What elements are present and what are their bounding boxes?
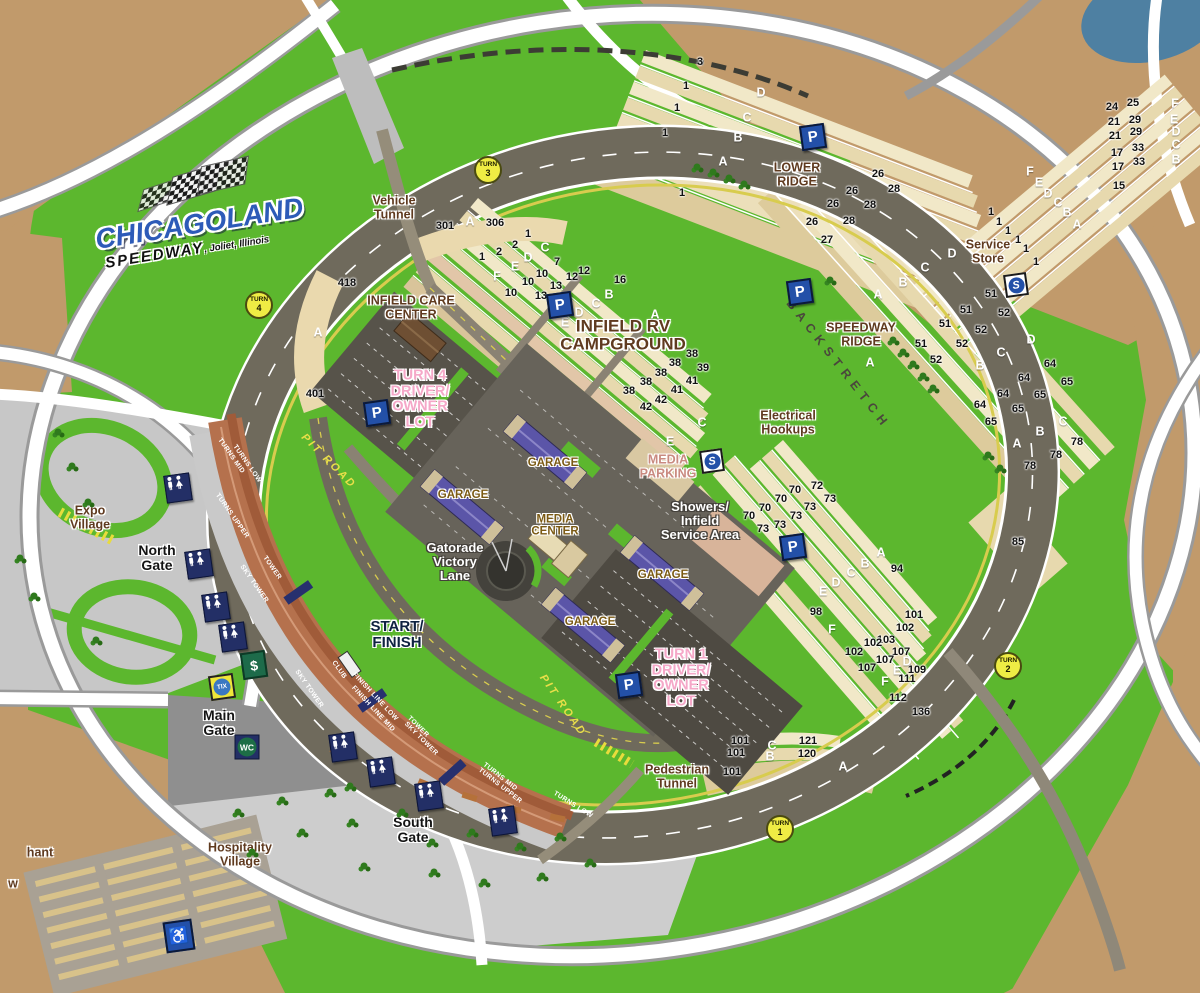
campsite-number: 107 xyxy=(892,647,910,659)
service-store-label: Service Store xyxy=(966,239,1010,266)
campsite-number: 72 xyxy=(811,481,823,493)
campsite-number: 73 xyxy=(824,494,836,506)
pit-road-label-1: PIT ROAD xyxy=(298,432,358,492)
campsite-number: 1 xyxy=(679,188,685,200)
tree-icon xyxy=(741,181,748,188)
campsite-number: 24 xyxy=(1106,102,1118,114)
row-letter: E xyxy=(666,435,674,449)
backstretch-label: BACKSTRETCH xyxy=(783,297,893,432)
row-letter: F xyxy=(828,623,836,637)
parking-icon: P xyxy=(546,291,574,319)
campsite-number: 38 xyxy=(669,358,681,370)
campsite-number: 42 xyxy=(655,395,667,407)
row-letter: E xyxy=(1035,176,1043,190)
campsite-number: 1 xyxy=(1005,226,1011,238)
campsite-number: 102 xyxy=(896,623,914,635)
campsite-number: 64 xyxy=(997,389,1009,401)
checkered-flags-icon xyxy=(120,136,399,219)
campsite-number: 1 xyxy=(674,103,680,115)
row-letter: A xyxy=(1072,218,1081,232)
campsite-number: 107 xyxy=(876,655,894,667)
row-letter: B xyxy=(604,288,613,302)
tree-icon xyxy=(694,164,701,171)
campsite-number: 51 xyxy=(985,289,997,301)
campsite-number: 101 xyxy=(731,736,749,748)
campsite-number: 38 xyxy=(655,368,667,380)
campsite-number: 51 xyxy=(915,339,927,351)
campsite-number: 101 xyxy=(905,610,923,622)
row-letter: A xyxy=(865,356,874,370)
restroom-icon xyxy=(218,621,248,652)
campsite-number: 33 xyxy=(1133,157,1145,169)
row-letter: D xyxy=(1026,333,1035,347)
campsite-number: 26 xyxy=(806,217,818,229)
campsite-number: 65 xyxy=(985,417,997,429)
campsite-number: 70 xyxy=(743,511,755,523)
wc-icon: WC xyxy=(235,735,260,760)
restroom-icon xyxy=(201,591,231,622)
tree-icon xyxy=(279,797,286,804)
campsite-number: 26 xyxy=(827,199,839,211)
campsite-number: 41 xyxy=(671,385,683,397)
campsite-number: 102 xyxy=(845,647,863,659)
campsite-number: 12 xyxy=(578,266,590,278)
north-gate-label: North Gate xyxy=(138,543,175,573)
map-overlay: CHICAGOLAND SPEEDWAY, Joliet, Illinois V… xyxy=(0,0,1200,993)
south-gate-label: South Gate xyxy=(393,815,433,845)
row-letter: C xyxy=(540,241,549,255)
row-letter: E xyxy=(893,664,901,678)
pit-road-label-2: PIT ROAD xyxy=(536,673,587,739)
campsite-number: 29 xyxy=(1129,115,1141,127)
tree-icon xyxy=(399,809,406,816)
grandstand-section-label: TURNS LOW xyxy=(231,444,263,485)
tree-icon xyxy=(517,843,524,850)
campsite-number: 65 xyxy=(1061,377,1073,389)
campsite-number: 64 xyxy=(1018,373,1030,385)
row-letter: C xyxy=(742,111,751,125)
campsite-number: 64 xyxy=(1044,359,1056,371)
row-letter: B xyxy=(1062,206,1071,220)
campsite-number: 1 xyxy=(1015,235,1021,247)
parking-icon: P xyxy=(799,123,827,151)
cash-icon: $ xyxy=(240,650,269,680)
restroom-icon xyxy=(366,756,396,787)
row-letter: D xyxy=(831,576,840,590)
campsite-number: 111 xyxy=(898,674,915,686)
campsite-number: 15 xyxy=(1113,181,1125,193)
row-letter: B xyxy=(1171,153,1180,167)
parking-icon: P xyxy=(615,671,643,699)
campsite-number: 107 xyxy=(858,663,876,675)
campsite-number: 12 xyxy=(566,272,578,284)
campsite-number: 70 xyxy=(775,494,787,506)
campsite-number: 70 xyxy=(759,503,771,515)
tree-icon xyxy=(431,869,438,876)
campsite-number: 2 xyxy=(512,240,518,252)
row-letter: C xyxy=(591,297,600,311)
restroom-icon xyxy=(163,472,193,503)
row-letter: E xyxy=(819,585,827,599)
campsite-number: 17 xyxy=(1112,162,1124,174)
campsite-number: 38 xyxy=(686,349,698,361)
campsite-number: 73 xyxy=(804,502,816,514)
garage-label-3: GARAGE xyxy=(638,569,688,581)
speedway-logo: CHICAGOLAND SPEEDWAY, Joliet, Illinois xyxy=(87,136,407,273)
grandstand-section-label: SKY TOWER xyxy=(238,564,270,605)
row-letter: C xyxy=(697,416,706,430)
campsite-number: 73 xyxy=(774,520,786,532)
row-letter: D xyxy=(902,655,911,669)
tree-icon xyxy=(85,499,92,506)
turn-2-marker: TURN2 xyxy=(994,652,1022,680)
campsite-number: 52 xyxy=(998,308,1010,320)
main-gate-label: Main Gate xyxy=(203,708,235,738)
media-center-label: MEDIA CENTER xyxy=(531,514,578,539)
logo-location: , Joliet, Illinois xyxy=(204,234,270,255)
campsite-number: 25 xyxy=(1127,98,1139,110)
campsite-number: 1 xyxy=(996,217,1002,229)
campsite-number: 418 xyxy=(338,278,356,290)
row-letter: E xyxy=(511,260,519,274)
infield-care-center-label: INFIELD CARE CENTER xyxy=(367,295,455,322)
expo-village-label: Expo Village xyxy=(70,505,110,532)
campsite-number: 17 xyxy=(1111,148,1123,160)
turn-3-marker: TURN3 xyxy=(474,156,502,184)
logo-tagline: SPEEDWAY xyxy=(104,239,205,271)
campsite-number: 301 xyxy=(436,221,454,233)
start-finish-label: START/ FINISH xyxy=(370,619,423,651)
campsite-number: 121 xyxy=(799,736,817,748)
row-letter: F xyxy=(1026,165,1034,179)
tree-icon xyxy=(429,839,436,846)
row-letter: B xyxy=(765,750,774,764)
campsite-number: 28 xyxy=(888,184,900,196)
row-letter: B xyxy=(898,276,907,290)
garage-label-2: GARAGE xyxy=(528,457,578,469)
row-letter: D xyxy=(756,86,765,100)
campsite-number: 39 xyxy=(697,363,709,375)
tree-icon xyxy=(890,337,897,344)
tree-icon xyxy=(349,819,356,826)
campsite-number: 3 xyxy=(697,57,703,69)
row-letter: A xyxy=(1012,437,1021,451)
logo-name: CHICAGOLAND xyxy=(93,176,404,256)
electrical-hookups-label: Electrical Hookups xyxy=(760,410,816,437)
grandstand-section-label: TURNS LOW xyxy=(552,790,594,820)
campsite-number: 51 xyxy=(939,319,951,331)
campsite-number: 112 xyxy=(889,693,907,705)
tree-icon xyxy=(469,829,476,836)
row-letter: B xyxy=(1035,425,1044,439)
campsite-number: 401 xyxy=(306,389,324,401)
row-letter: B xyxy=(975,359,984,373)
tree-icon xyxy=(930,385,937,392)
campsite-number: 78 xyxy=(1071,437,1083,449)
row-letter: A xyxy=(465,215,474,229)
row-letter: A xyxy=(838,760,847,774)
campsite-number: 51 xyxy=(960,305,972,317)
row-letter: D xyxy=(1043,187,1052,201)
grandstand-section-label: SKY TOWER xyxy=(403,721,440,758)
grandstand-section-label: TOWER xyxy=(261,555,283,581)
campsite-number: 21 xyxy=(1109,131,1121,143)
grandstand-section-label: FINISH LINE LOW xyxy=(351,671,400,722)
tree-icon xyxy=(327,789,334,796)
campsite-number: 102 xyxy=(864,638,882,650)
row-letter: A xyxy=(313,326,322,340)
media-parking-label: MEDIA PARKING xyxy=(640,454,697,481)
grandstand-section-label: CLUB xyxy=(330,660,348,681)
row-letter: C xyxy=(1053,196,1062,210)
merchant-row-label-fragment: hant xyxy=(27,846,53,860)
parking-icon: P xyxy=(363,399,391,427)
grandstand-section-label: TURNS MID xyxy=(481,761,518,792)
row-letter: E xyxy=(561,316,569,330)
lower-ridge-label: LOWER RIDGE xyxy=(774,162,821,189)
restroom-icon xyxy=(184,548,214,579)
campsite-number: 10 xyxy=(522,277,534,289)
showers-service-area-label: Showers/ Infield Service Area xyxy=(661,500,739,542)
turn-1-marker: TURN1 xyxy=(766,815,794,843)
campsite-number: 7 xyxy=(554,257,560,269)
campsite-number: 65 xyxy=(1012,404,1024,416)
infield-rv-campground-label: INFIELD RV CAMPGROUND xyxy=(560,318,686,355)
tree-icon xyxy=(17,555,24,562)
row-letter: D xyxy=(574,306,583,320)
campsite-number: 1 xyxy=(1033,257,1039,269)
tree-icon xyxy=(249,849,256,856)
campsite-number: 33 xyxy=(1132,143,1144,155)
tree-icon xyxy=(93,637,100,644)
campsite-number: 26 xyxy=(846,186,858,198)
accessible-parking-icon: ♿ xyxy=(162,919,195,954)
campsite-number: 73 xyxy=(790,511,802,523)
tree-icon xyxy=(69,463,76,470)
campsite-number: 29 xyxy=(1130,127,1142,139)
row-letter: B xyxy=(860,557,869,571)
speedway-ridge-label: SPEEDWAY RIDGE xyxy=(826,322,896,349)
row-letter: A xyxy=(873,288,882,302)
s-marker-icon: S xyxy=(699,448,725,474)
tree-icon xyxy=(539,873,546,880)
row-letter: A xyxy=(718,155,727,169)
campsite-number: 41 xyxy=(686,376,698,388)
campsite-number: 38 xyxy=(623,386,635,398)
row-letter: C xyxy=(1171,138,1180,152)
campsite-number: 85 xyxy=(1012,537,1024,549)
row-letter: F xyxy=(1171,97,1179,111)
campsite-number: 1 xyxy=(479,252,485,264)
parking-icon: P xyxy=(786,278,814,306)
campsite-number: 28 xyxy=(864,200,876,212)
tree-icon xyxy=(587,859,594,866)
tree-icon xyxy=(710,169,717,176)
tree-icon xyxy=(347,783,354,790)
campsite-number: 94 xyxy=(891,564,903,576)
garage-label-1: GARAGE xyxy=(438,489,488,501)
campsite-number: 27 xyxy=(821,235,833,247)
tree-icon xyxy=(985,452,992,459)
restroom-icon xyxy=(414,780,444,811)
row-letter: C xyxy=(767,739,776,753)
row-letter: C xyxy=(846,566,855,580)
restroom-icon xyxy=(488,805,518,836)
campsite-number: 52 xyxy=(956,339,968,351)
grandstand-section-label: TURNS UPPER xyxy=(214,492,250,540)
restroom-icon xyxy=(328,731,358,762)
row-letter: D xyxy=(947,247,956,261)
tree-icon xyxy=(481,879,488,886)
grandstand-section-label: TURNS MID xyxy=(216,437,246,475)
tree-icon xyxy=(299,829,306,836)
grandstand-section-label: FINISH LINE MID xyxy=(350,685,396,734)
victory-lane-label: Gatorade Victory Lane xyxy=(426,541,483,583)
campsite-number: 103 xyxy=(877,635,895,647)
merchant-row-label-fragment-2: w xyxy=(8,877,18,891)
row-letter: D xyxy=(523,251,532,265)
campsite-number: 10 xyxy=(536,269,548,281)
tree-icon xyxy=(726,175,733,182)
campsite-number: 16 xyxy=(614,275,626,287)
campsite-number: 28 xyxy=(843,216,855,228)
campsite-number: 26 xyxy=(872,169,884,181)
row-letter: A xyxy=(876,546,885,560)
row-letter: B xyxy=(733,131,742,145)
row-letter: F xyxy=(493,270,501,284)
row-letter: F xyxy=(881,675,889,689)
vehicle-tunnel-label: Vehicle Tunnel xyxy=(372,195,415,222)
campsite-number: 38 xyxy=(640,377,652,389)
campsite-number: 98 xyxy=(810,607,822,619)
campsite-number: 21 xyxy=(1108,117,1120,129)
campsite-number: 1 xyxy=(1023,244,1029,256)
tree-icon xyxy=(235,809,242,816)
campsite-number: 306 xyxy=(486,218,504,230)
campsite-number: 64 xyxy=(974,400,986,412)
campsite-number: 42 xyxy=(640,402,652,414)
campsite-number: 78 xyxy=(1050,450,1062,462)
turn4-driver-owner-lot-label: TURN 4 DRIVER/ OWNER LOT xyxy=(391,369,450,432)
garage-label-4: GARAGE xyxy=(565,616,615,628)
campsite-number: 109 xyxy=(908,665,926,677)
grandstand-section-label: TURNS UPPER xyxy=(477,767,523,805)
hospitality-village-label: Hospitality Village xyxy=(208,842,272,869)
turn-4-marker: TURN4 xyxy=(245,291,273,319)
campsite-number: 65 xyxy=(1034,390,1046,402)
tree-icon xyxy=(827,277,834,284)
tree-icon xyxy=(557,833,564,840)
tree-icon xyxy=(920,373,927,380)
campsite-number: 1 xyxy=(662,128,668,140)
campsite-number: 1 xyxy=(525,229,531,241)
parking-icon: P xyxy=(779,533,807,561)
grandstand-section-label: TOWER xyxy=(406,715,430,739)
campsite-number: 120 xyxy=(798,749,816,761)
tree-icon xyxy=(900,349,907,356)
tree-icon xyxy=(361,863,368,870)
campsite-number: 78 xyxy=(1024,461,1036,473)
campsite-number: 2 xyxy=(496,247,502,259)
campsite-number: 73 xyxy=(757,524,769,536)
campsite-number: 101 xyxy=(723,767,741,779)
campsite-number: 1 xyxy=(988,207,994,219)
tickets-icon: TIX xyxy=(208,673,236,701)
campsite-number: 70 xyxy=(789,485,801,497)
campsite-number: 10 xyxy=(505,288,517,300)
row-letter: C xyxy=(1058,415,1067,429)
s-marker-icon: S xyxy=(1003,272,1029,298)
tree-icon xyxy=(910,361,917,368)
campsite-number: 1 xyxy=(683,81,689,93)
tree-icon xyxy=(997,465,1004,472)
campsite-number: 101 xyxy=(727,748,745,760)
speedway-map: CHICAGOLAND SPEEDWAY, Joliet, Illinois V… xyxy=(0,0,1200,993)
row-letter: A xyxy=(650,308,659,322)
grandstand-section-label: SKY TOWER xyxy=(293,669,325,710)
row-letter: D xyxy=(1171,125,1180,139)
tree-icon xyxy=(55,429,62,436)
campsite-number: 136 xyxy=(912,707,930,719)
turn1-driver-owner-lot-label: TURN 1 DRIVER/ OWNER LOT xyxy=(652,648,711,711)
tree-icon xyxy=(31,593,38,600)
row-letter: C xyxy=(920,261,929,275)
row-letter: C xyxy=(996,346,1005,360)
campsite-number: 52 xyxy=(975,325,987,337)
campsite-number: 52 xyxy=(930,355,942,367)
campsite-number: 13 xyxy=(550,281,562,293)
pedestrian-tunnel-label: Pedestrian Tunnel xyxy=(645,764,709,791)
row-letter: E xyxy=(1170,113,1178,127)
